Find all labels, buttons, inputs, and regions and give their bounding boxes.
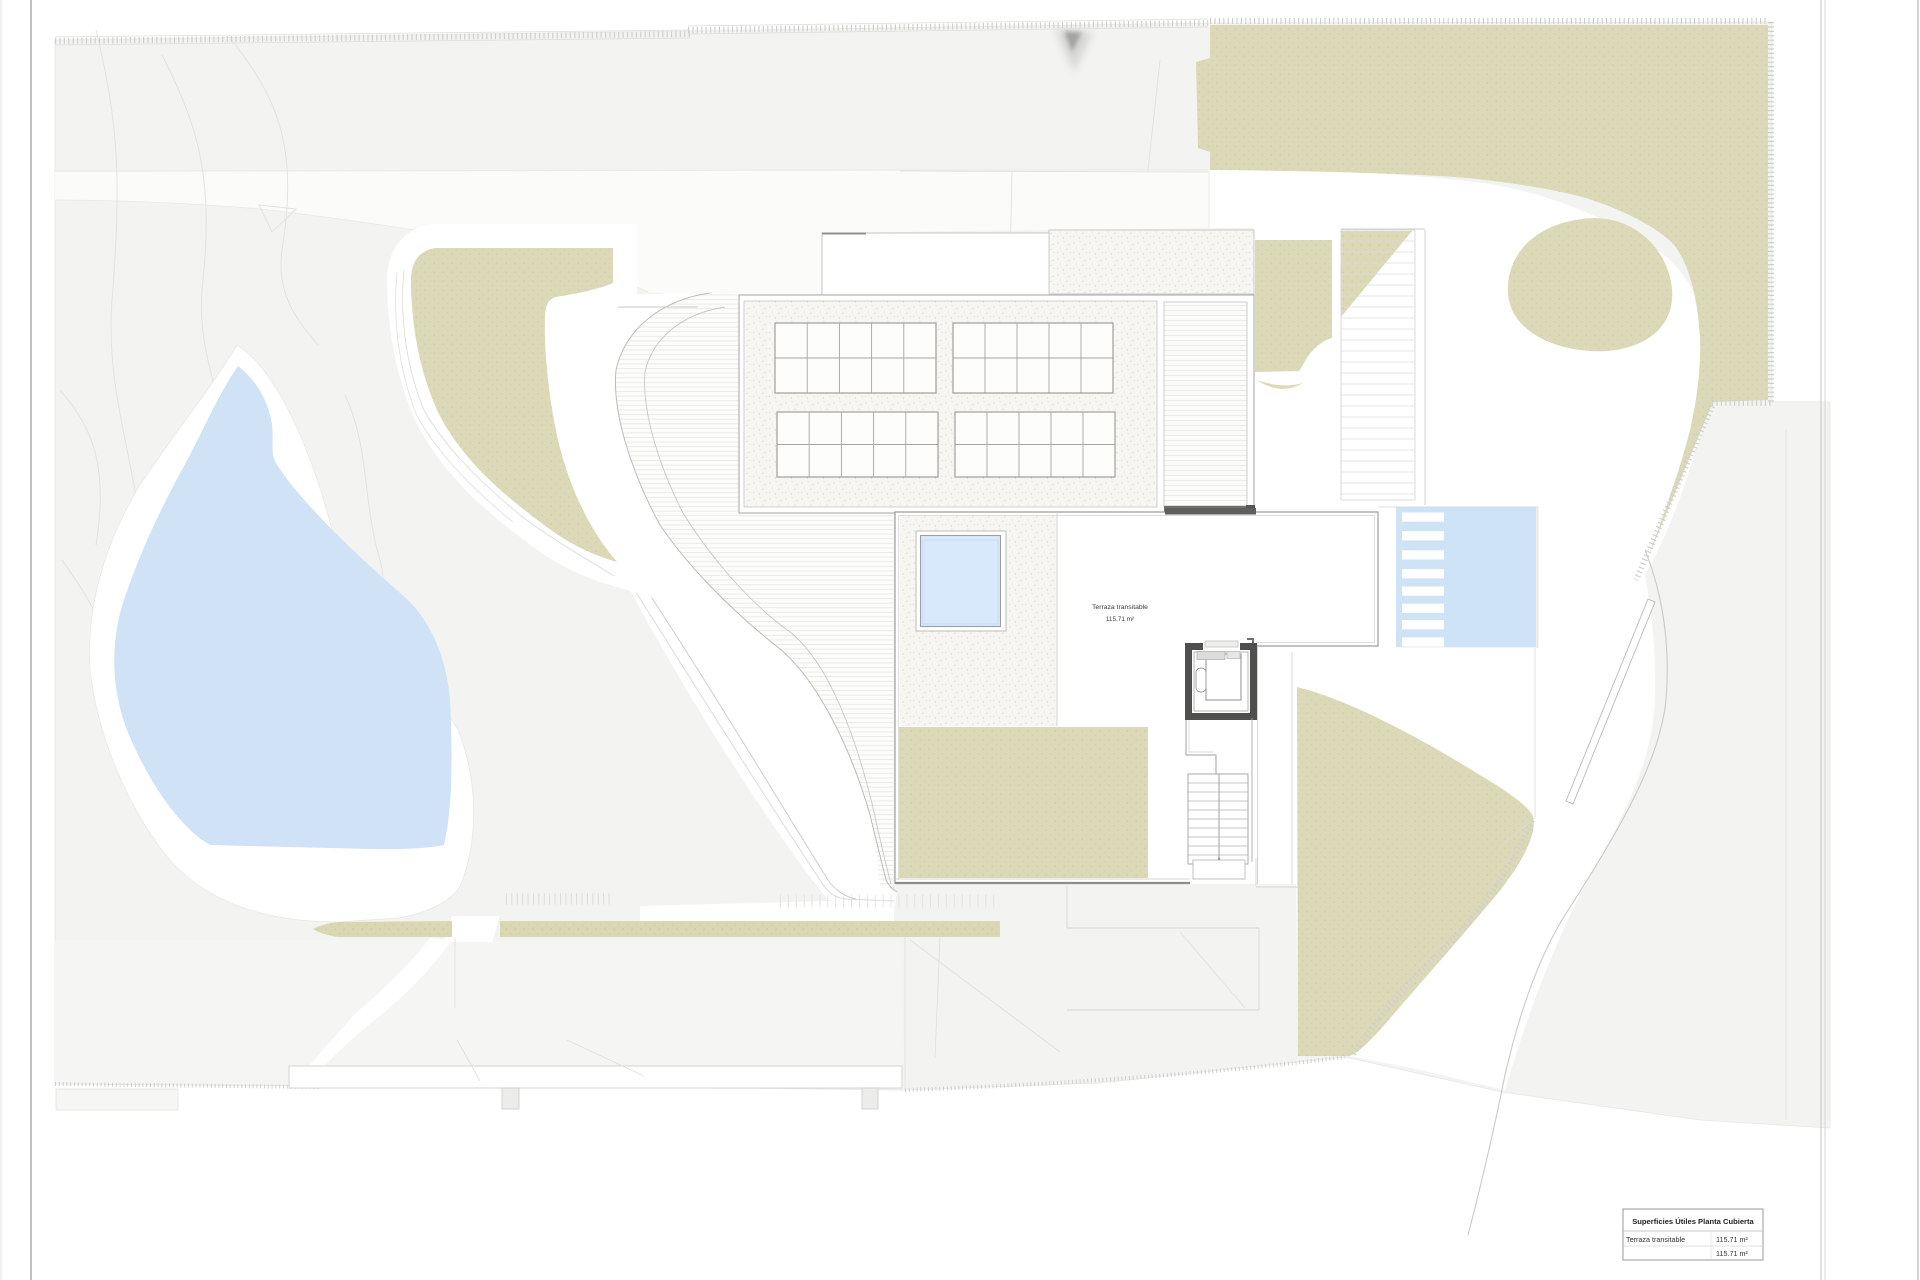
svg-text:115.71 m²: 115.71 m² [1106,616,1134,623]
svg-text:Terraza transitable: Terraza transitable [1626,1235,1685,1244]
svg-text:Terraza transitable: Terraza transitable [1092,604,1148,611]
svg-text:Superficies Útiles Planta Cubi: Superficies Útiles Planta Cubierta [1632,1217,1754,1226]
svg-text:115.71 m²: 115.71 m² [1716,1235,1748,1244]
svg-text:115.71 m²: 115.71 m² [1716,1249,1748,1258]
